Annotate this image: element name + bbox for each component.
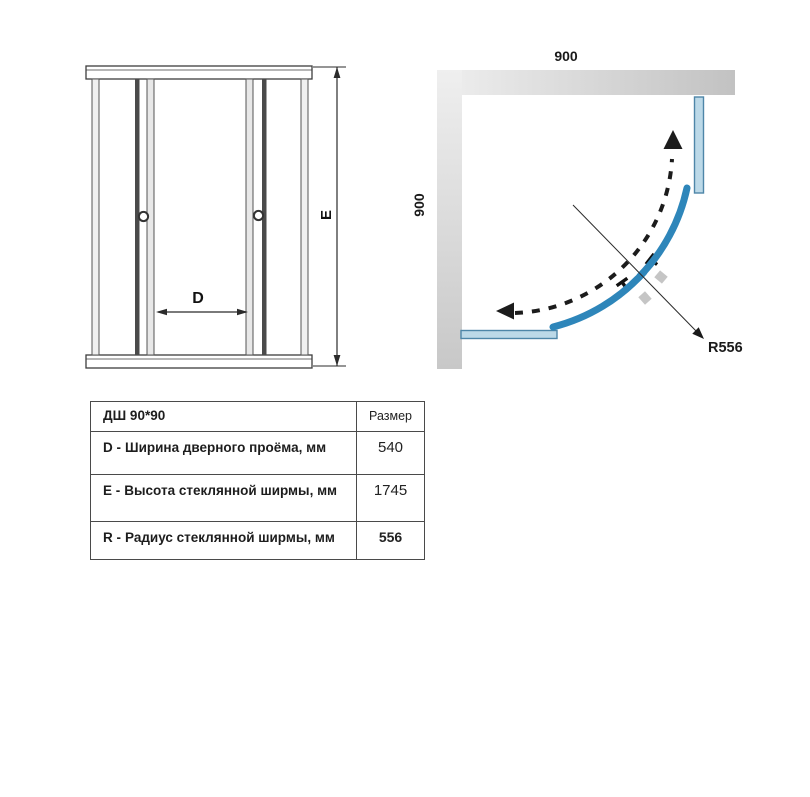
- dimension-e: E: [313, 67, 346, 366]
- radius-label: R556: [708, 340, 743, 356]
- arrow-up-icon: [664, 130, 683, 149]
- wall-top: [437, 70, 735, 95]
- row-key: E -: [103, 483, 120, 498]
- arrow-left-icon: [496, 303, 514, 320]
- table-header-row: ДШ 90*90 Размер: [91, 402, 424, 431]
- model-name: ДШ 90*90: [91, 402, 356, 431]
- arrow-left-icon: [156, 309, 167, 316]
- dimension-900-left: 900: [411, 193, 427, 217]
- left-door-handle-icon: [139, 212, 148, 221]
- row-value: 1745: [374, 482, 407, 521]
- left-frame-profile: [92, 79, 99, 355]
- row-key: R -: [103, 530, 121, 545]
- dimension-d: D: [156, 290, 248, 315]
- front-view-diagram: D E: [55, 50, 355, 380]
- table-row: E -Высота стеклянной ширмы, мм 1745: [91, 474, 424, 521]
- bottom-rail: [86, 355, 312, 368]
- top-view-diagram: 900 900 R556: [405, 40, 805, 370]
- dimension-e-label: E: [318, 210, 335, 220]
- row-label: Радиус стеклянной ширмы, мм: [125, 530, 335, 545]
- arrow-up-icon: [334, 67, 341, 78]
- row-value: 556: [379, 529, 402, 559]
- wall-left: [437, 70, 462, 369]
- top-rail: [86, 66, 312, 79]
- door-swing-path: [496, 130, 683, 320]
- fixed-panel-bottom: [461, 331, 557, 339]
- radius-dimension: R556: [573, 205, 743, 356]
- door-handle-bracket-icon: [638, 291, 651, 304]
- dimension-900-top: 900: [554, 48, 578, 64]
- row-key: D -: [103, 440, 121, 455]
- arrow-down-icon: [334, 355, 341, 366]
- glass-door-arc-lower: [553, 272, 644, 327]
- dimension-d-label: D: [192, 290, 204, 307]
- page: D E 900 900: [0, 0, 810, 797]
- right-door-stile: [246, 79, 253, 355]
- fixed-panel-right: [695, 97, 704, 193]
- table-row: R -Радиус стеклянной ширмы, мм 556: [91, 521, 424, 559]
- size-column-header: Размер: [356, 402, 424, 431]
- right-door-handle-icon: [254, 211, 263, 220]
- door-handle-bracket-icon: [654, 270, 667, 283]
- row-label: Высота стеклянной ширмы, мм: [124, 483, 337, 498]
- row-value: 540: [378, 439, 403, 474]
- table-row: D -Ширина дверного проёма, мм 540: [91, 431, 424, 474]
- spec-table: ДШ 90*90 Размер D -Ширина дверного проём…: [90, 401, 425, 560]
- right-frame-profile: [301, 79, 308, 355]
- row-label: Ширина дверного проёма, мм: [125, 440, 326, 455]
